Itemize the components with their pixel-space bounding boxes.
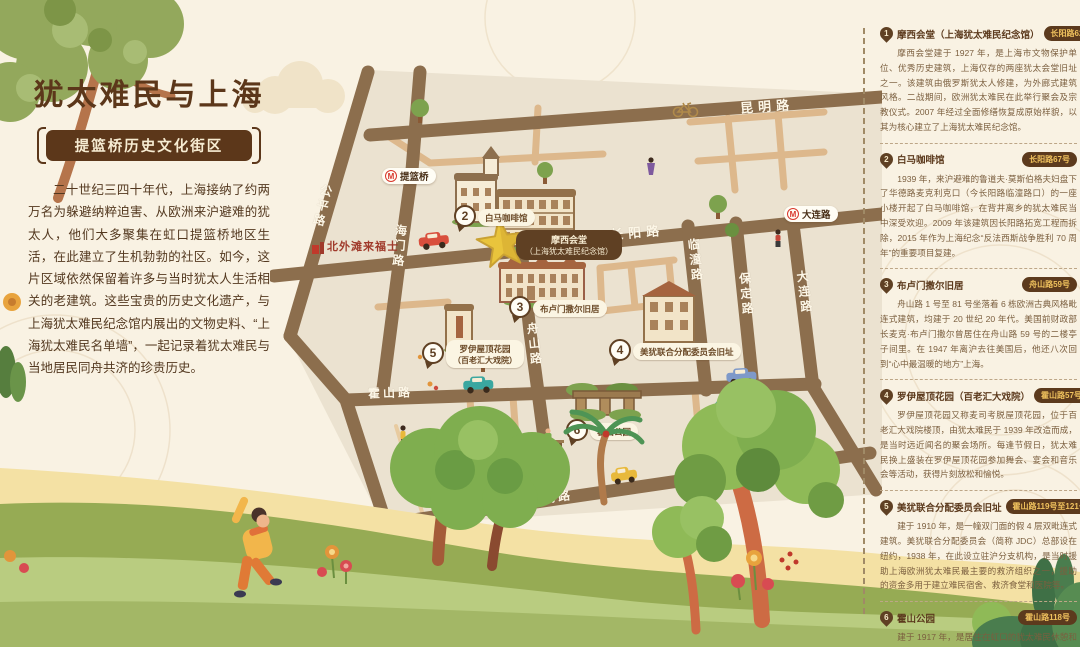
page-title: 犹太难民与上海 [28,70,270,114]
poi-title: 美犹联合分配委员会旧址 [897,500,1002,514]
map-marker-4: 4 [609,339,631,361]
district-badge: 提篮桥历史文化街区 [46,130,252,161]
poi-address-badge: 长阳路62号 [1044,26,1080,41]
poi-panel: 1 摩西会堂（上海犹太难民纪念馆） 长阳路62号 摩西会堂建于 1927 年，是… [880,26,1077,647]
map-marker-3-label: 布卢门撒尔旧居 [533,300,607,317]
poi-address-badge: 霍山路119号至121号 [1006,499,1080,514]
intro-block: 犹太难民与上海 提篮桥历史文化街区 二十世纪三四十年代，上海接纳了约两万名为躲避… [28,70,270,379]
poi-description: 建于 1917 年，是居住在虹口的犹太难民休憩和聚会场所，也深受犹太孩子们的喜爱… [880,630,1077,647]
metro-logo-icon: M [385,170,397,182]
poi-item-jdc-site: 5 美犹联合分配委员会旧址 霍山路119号至121号 建于 1910 年，是一幢… [880,499,1077,602]
poi-address-badge: 霍山路57号 [1034,388,1080,403]
metro-station-tilanqiao: M 提篮桥 [382,168,436,184]
map-marker-5-label: 罗伊屋顶花园 （百老汇大戏院） [446,340,524,368]
road-label-huoshan: 霍山路 [368,383,414,402]
poi-title: 罗伊屋顶花园（百老汇大戏院） [897,389,1030,403]
map-pin-icon: 2 [877,150,895,168]
poi-item-moses-hall: 1 摩西会堂（上海犹太难民纪念馆） 长阳路62号 摩西会堂建于 1927 年，是… [880,26,1077,144]
building-icon [312,242,324,254]
map-marker-3: 3 [509,296,531,318]
intro-paragraph: 二十世纪三四十年代，上海接纳了约两万名为躲避纳粹迫害、从欧洲来沪避难的犹太人，他… [28,179,270,379]
metro-logo-icon: M [787,208,799,220]
metro-station-dalianlu: M 大连路 [784,206,838,222]
road-label-kunming: 昆明路 [739,94,794,117]
map-pin-icon: 1 [877,24,895,42]
map-pin-icon: 5 [877,497,895,515]
poi-description: 建于 1910 年，是一幢双门面的假 4 层双毗连式建筑。美犹联合分配委员会（简… [880,519,1077,593]
poi-description: 罗伊屋顶花园又称麦司考脱屋顶花园，位于百老汇大戏院楼顶，由犹太难民于 1939 … [880,408,1077,482]
star-site-label: 摩西会堂 （上海犹太难民纪念馆） [516,230,622,260]
poi-item-blumenthal-residence: 3 布卢门撒尔旧居 舟山路59号 舟山路 1 号至 81 号坐落着 6 栋欧洲古… [880,277,1077,380]
map-marker-2: 2 [454,205,476,227]
map-pin-icon: 4 [877,387,895,405]
landmark-north-bund: 北外滩来福士 [312,238,399,254]
map-pin-icon: 6 [877,608,895,626]
district-map: 昆明路 长阳路 霍山路 惠民路 公平路 海门路 舟山路 临潼路 保定路 大连路 … [270,10,882,535]
poi-description: 摩西会堂建于 1927 年，是上海市文物保护单位、优秀历史建筑，上海仅存的两座犹… [880,46,1077,135]
map-marker-6: 6 [566,419,588,441]
map-marker-4-label: 美犹联合分配委员会旧址 [633,343,741,360]
map-pin-icon: 3 [877,276,895,294]
panel-divider [863,28,865,614]
poi-item-white-horse-cafe: 2 白马咖啡馆 长阳路67号 1939 年，来沪避难的鲁道夫·莫斯伯格夫妇盘下了… [880,152,1077,270]
poi-title: 霍山公园 [897,611,935,625]
poster: 犹太难民与上海 提篮桥历史文化街区 二十世纪三四十年代，上海接纳了约两万名为躲避… [0,0,1080,647]
poi-item-huoshan-park: 6 霍山公园 霍山路118号 建于 1917 年，是居住在虹口的犹太难民休憩和聚… [880,610,1077,647]
poi-description: 1939 年，来沪避难的鲁道夫·莫斯伯格夫妇盘下了华德路麦克利克口（今长阳路临潼… [880,172,1077,261]
poi-address-badge: 舟山路59号 [1022,277,1077,292]
poi-address-badge: 霍山路118号 [1018,610,1077,625]
map-marker-2-label: 白马咖啡馆 [478,209,535,226]
map-marker-6-label: 霍山公园 [590,423,638,440]
poi-address-badge: 长阳路67号 [1022,152,1077,167]
poi-description: 舟山路 1 号至 81 号坐落着 6 栋欧洲古典风格毗连式建筑，均建于 20 世… [880,297,1077,371]
map-marker-5: 5 [422,342,444,364]
poi-title: 布卢门撒尔旧居 [897,278,964,292]
poi-title: 白马咖啡馆 [897,152,945,166]
poi-title: 摩西会堂（上海犹太难民纪念馆） [897,27,1040,41]
woman-red [775,229,780,247]
pedestrian [400,425,405,446]
poi-item-roy-roof-garden: 4 罗伊屋顶花园（百老汇大戏院） 霍山路57号 罗伊屋顶花园又称麦司考脱屋顶花园… [880,388,1077,491]
